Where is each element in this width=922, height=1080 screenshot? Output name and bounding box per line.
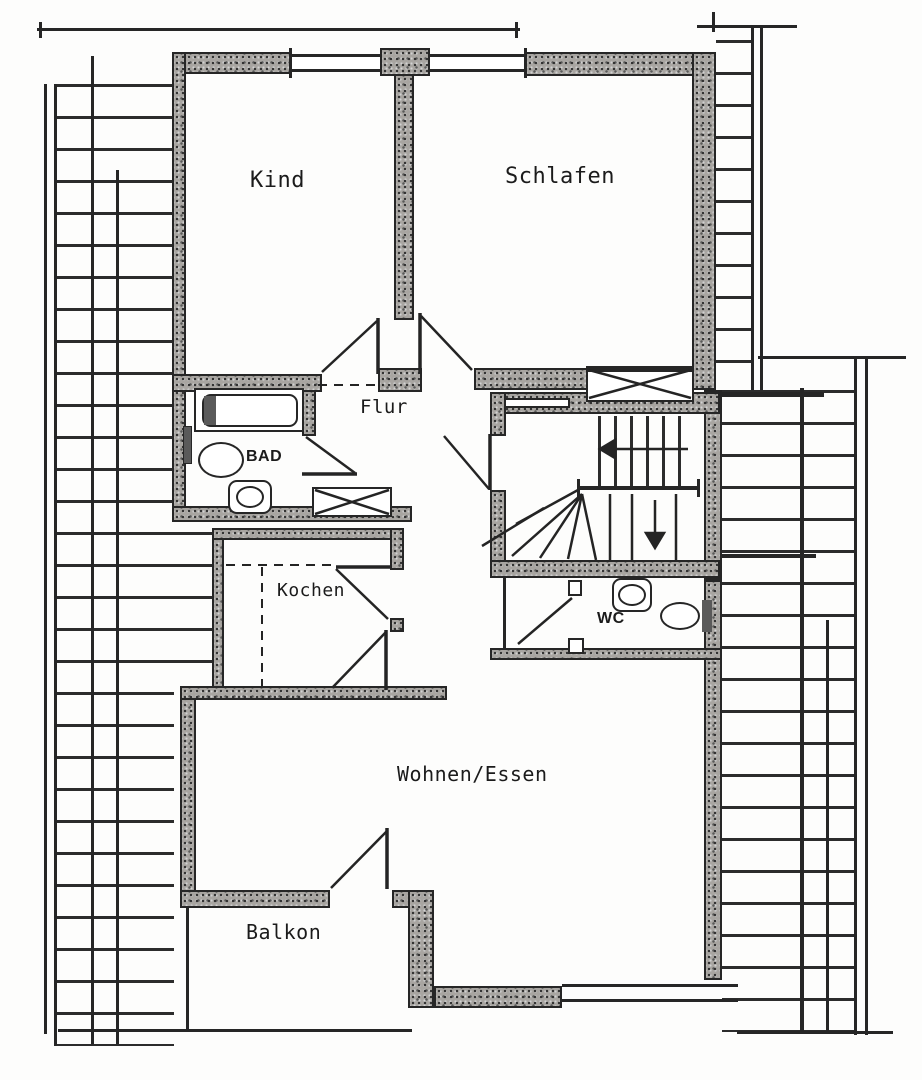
room-label-kochen: Kochen (277, 580, 345, 601)
room-label-wc: WC (597, 610, 625, 628)
roof-slope-dashed-lines (226, 385, 383, 686)
floor-plan: Kind Schlafen Flur BAD Kochen WC Wohnen/… (0, 0, 922, 1080)
door-swing-schlafen (420, 313, 472, 374)
plan-linework (0, 0, 922, 1080)
door-swing-wc (518, 598, 572, 644)
stair-direction-arrow-up (600, 440, 688, 458)
door-swing-entry (444, 434, 490, 490)
door-swing-balkon (331, 828, 387, 889)
room-label-bad: BAD (246, 448, 282, 466)
closet-x-mark (315, 490, 389, 514)
room-label-balkon: Balkon (246, 920, 321, 944)
room-label-wohnen-essen: Wohnen/Essen (397, 762, 548, 786)
room-label-kind: Kind (250, 168, 305, 193)
stair-direction-arrow-down (646, 500, 664, 548)
shaft-x-mark (589, 370, 691, 398)
door-swing-bad (302, 437, 357, 474)
stair-winders (482, 490, 676, 560)
door-swing-kochen-bottom (333, 630, 386, 690)
door-swing-kind (322, 318, 378, 374)
room-label-schlafen: Schlafen (505, 164, 615, 189)
room-label-flur: Flur (360, 396, 408, 418)
